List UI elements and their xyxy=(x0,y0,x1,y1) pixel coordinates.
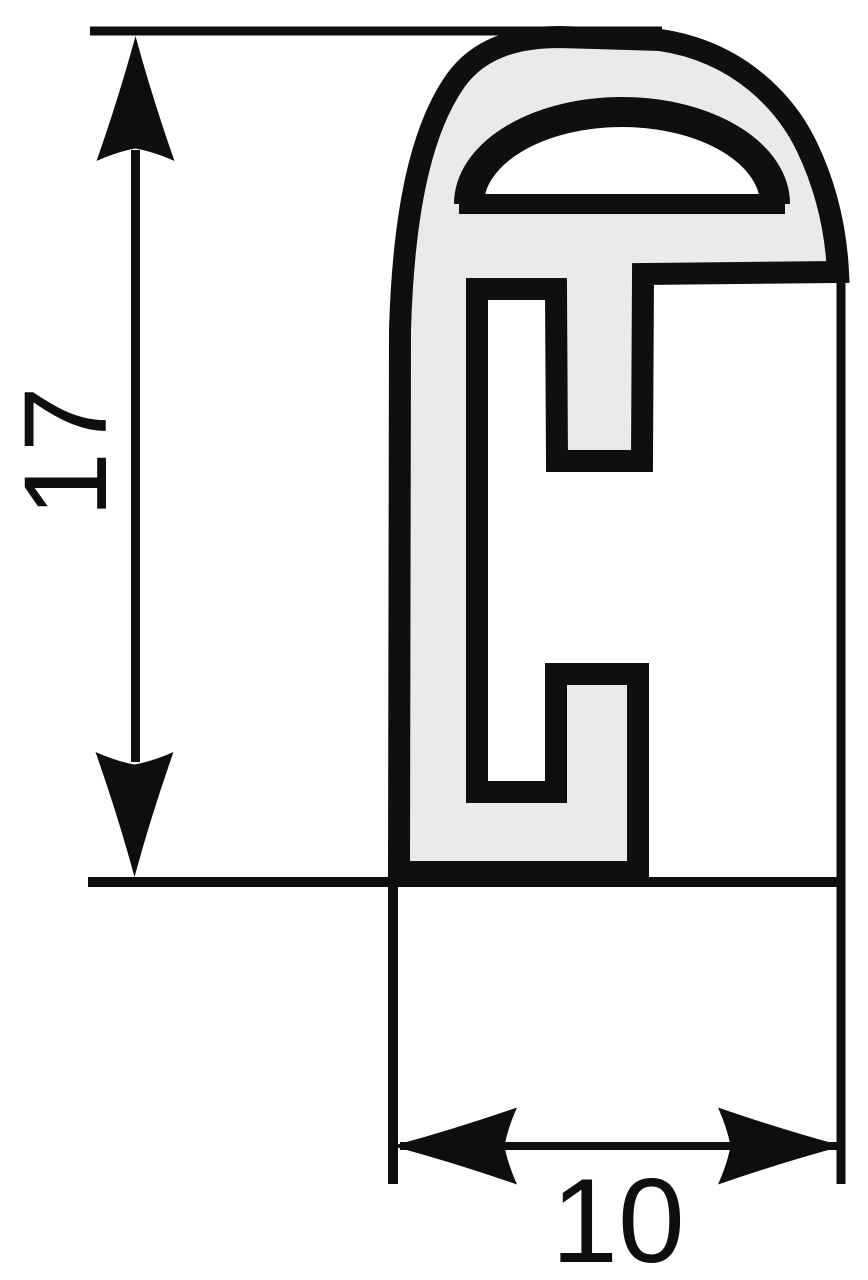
svg-text:10: 10 xyxy=(551,1154,684,1280)
svg-text:17: 17 xyxy=(0,386,132,517)
